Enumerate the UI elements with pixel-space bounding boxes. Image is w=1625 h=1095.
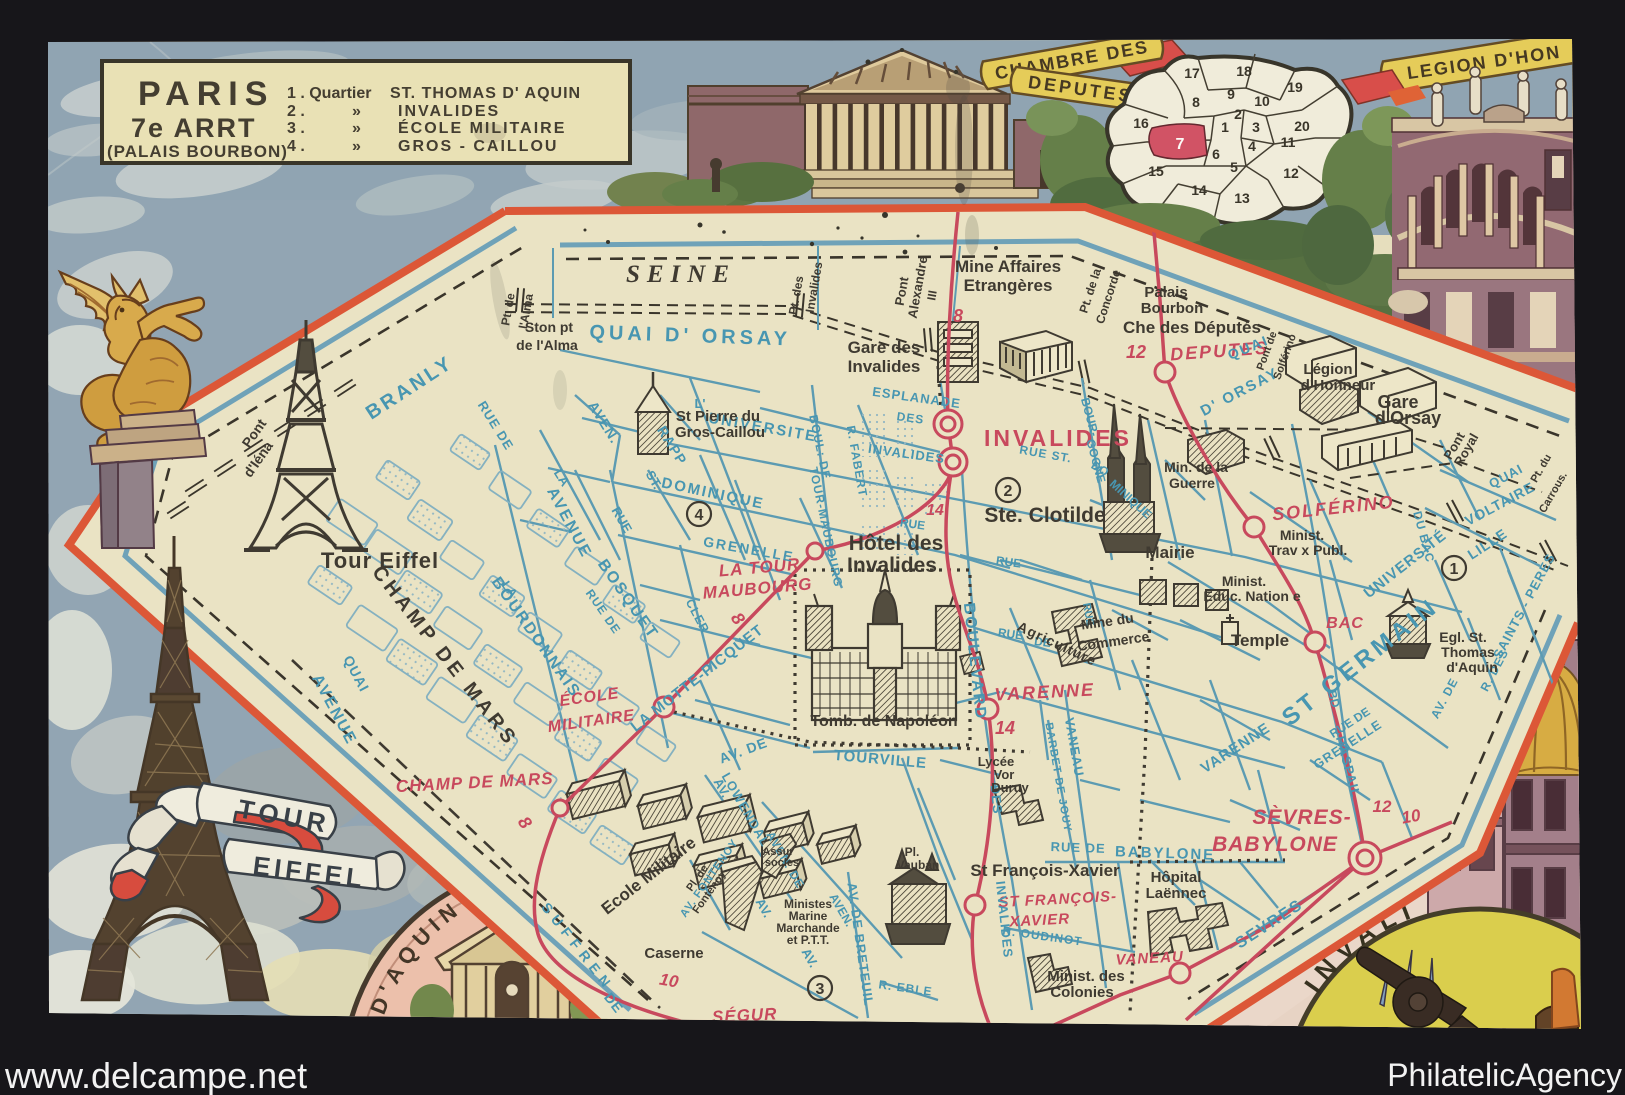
svg-text:www.delcampe.net: www.delcampe.net (4, 1055, 307, 1095)
svg-text:PhilatelicAgency: PhilatelicAgency (1387, 1057, 1622, 1093)
